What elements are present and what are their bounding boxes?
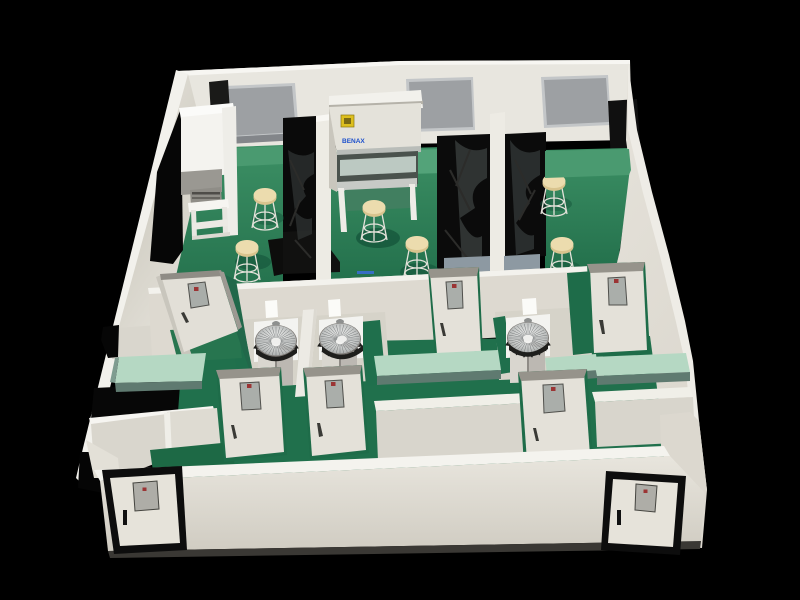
svg-text:BENAX: BENAX xyxy=(342,138,365,145)
